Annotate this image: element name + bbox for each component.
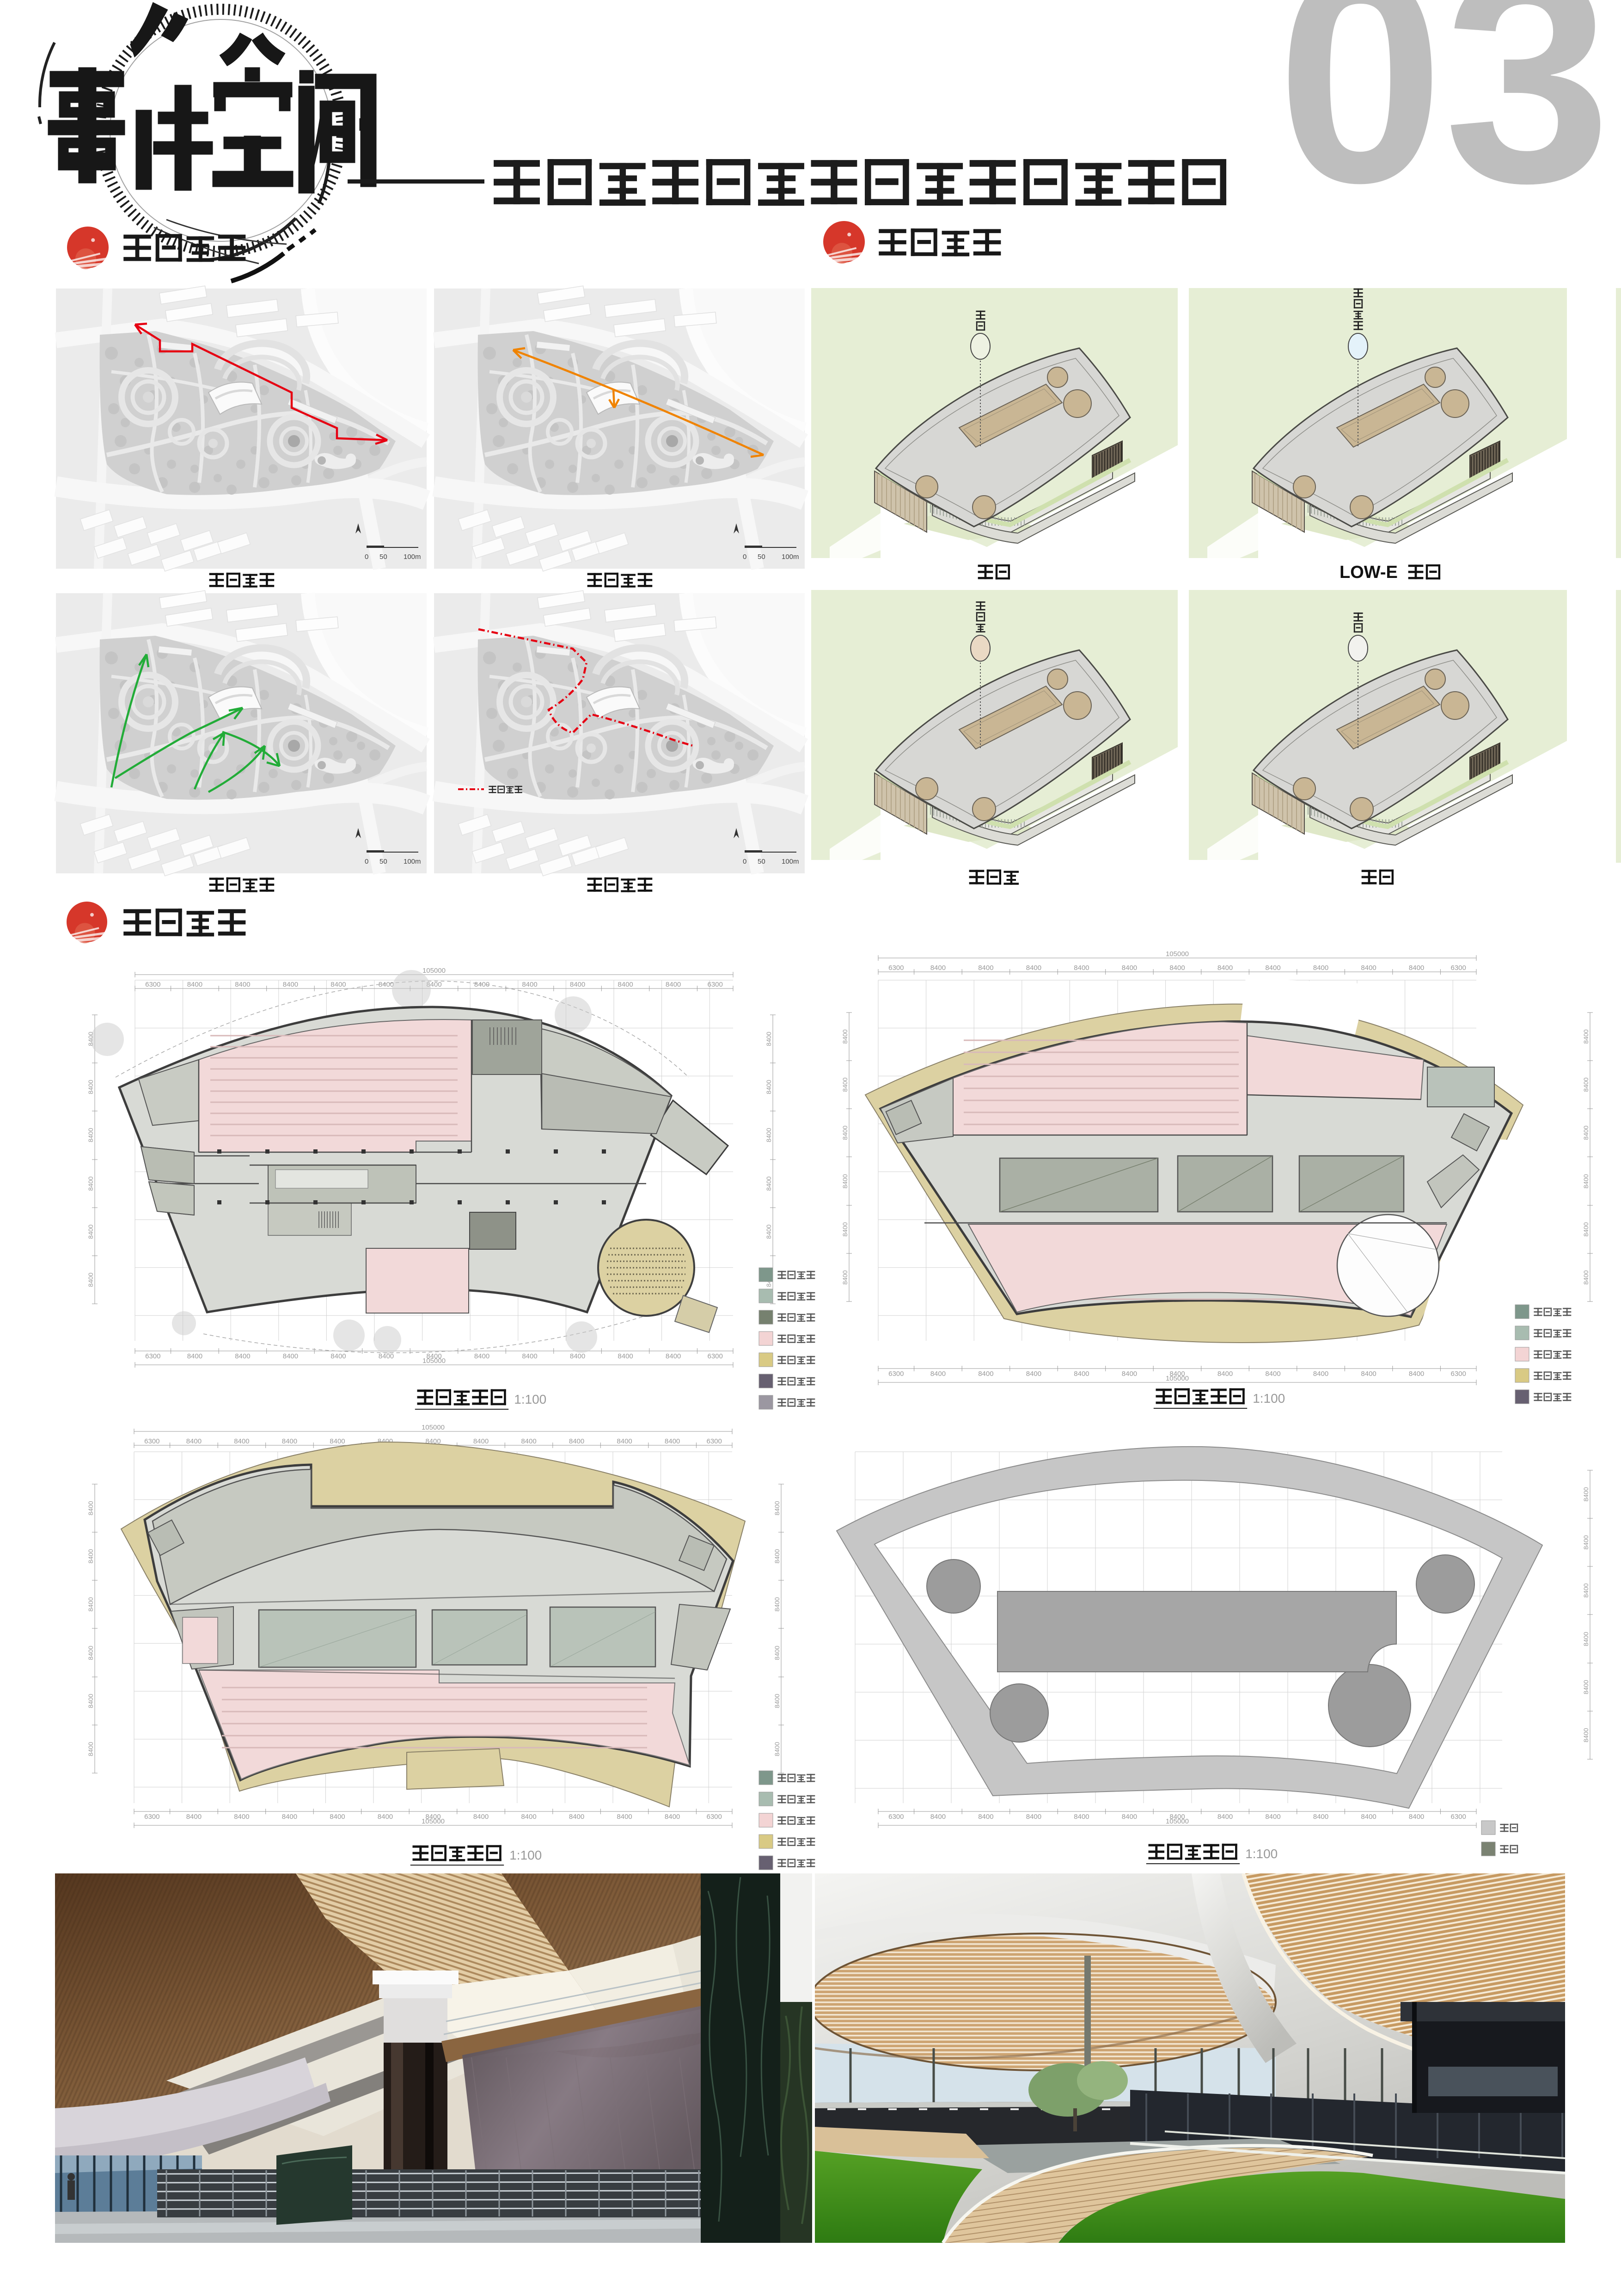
svg-text:8400: 8400 [1265,964,1280,972]
svg-text:6300: 6300 [1450,964,1466,972]
svg-text:1:100: 1:100 [1253,1391,1285,1406]
svg-text:1:100: 1:100 [514,1392,546,1406]
svg-text:8400: 8400 [570,981,585,988]
svg-text:8400: 8400 [1582,1222,1590,1236]
svg-text:8400: 8400 [665,1437,680,1445]
svg-text:8400: 8400 [1582,1728,1590,1742]
svg-text:8400: 8400 [330,981,346,988]
svg-text:8400: 8400 [978,1370,993,1378]
svg-text:8400: 8400 [1582,1535,1590,1549]
svg-text:6300: 6300 [706,1813,722,1821]
svg-text:8400: 8400 [87,1742,94,1756]
svg-text:8400: 8400 [665,1813,680,1821]
svg-text:8400: 8400 [186,1813,202,1821]
svg-text:LOW-E: LOW-E [1340,563,1398,582]
svg-text:8400: 8400 [186,1437,202,1445]
svg-text:03: 03 [1277,0,1611,245]
svg-text:8400: 8400 [1361,1813,1376,1821]
svg-text:8400: 8400 [87,1597,94,1611]
svg-text:8400: 8400 [474,1352,489,1360]
svg-text:8400: 8400 [521,1813,536,1821]
svg-text:8400: 8400 [187,981,202,988]
svg-text:8400: 8400 [235,1352,250,1360]
svg-text:8400: 8400 [87,1694,94,1708]
svg-text:8400: 8400 [1122,1370,1137,1378]
svg-text:8400: 8400 [378,1813,393,1821]
svg-text:8400: 8400 [666,1352,681,1360]
svg-text:8400: 8400 [1361,964,1376,972]
svg-text:8400: 8400 [1409,964,1424,972]
svg-text:8400: 8400 [1074,1813,1089,1821]
svg-text:8400: 8400 [618,981,633,988]
svg-text:6300: 6300 [145,981,160,988]
svg-text:8400: 8400 [1582,1270,1590,1284]
svg-text:8400: 8400 [1265,1370,1280,1378]
svg-text:8400: 8400 [841,1077,849,1092]
svg-text:8400: 8400 [569,1437,584,1445]
svg-text:8400: 8400 [765,1224,772,1239]
svg-text:8400: 8400 [1361,1370,1376,1378]
svg-text:8400: 8400 [569,1813,584,1821]
svg-text:8400: 8400 [1217,964,1233,972]
svg-text:8400: 8400 [1074,964,1089,972]
svg-text:8400: 8400 [1409,1813,1424,1821]
svg-text:8400: 8400 [773,1597,781,1611]
svg-text:8400: 8400 [1313,1370,1328,1378]
svg-text:8400: 8400 [1582,1125,1590,1140]
svg-text:8400: 8400 [1169,1370,1185,1378]
svg-text:8400: 8400 [473,1813,489,1821]
svg-text:8400: 8400 [425,1813,440,1821]
svg-text:8400: 8400 [473,1437,489,1445]
svg-text:8400: 8400 [283,981,298,988]
svg-text:8400: 8400 [87,1645,94,1660]
svg-text:8400: 8400 [379,981,394,988]
svg-text:8400: 8400 [1026,1370,1041,1378]
svg-text:105000: 105000 [422,1424,445,1431]
svg-text:8400: 8400 [521,1437,536,1445]
svg-text:8400: 8400 [282,1437,297,1445]
svg-text:8400: 8400 [283,1352,298,1360]
svg-text:8400: 8400 [773,1742,781,1756]
svg-text:8400: 8400 [1582,1487,1590,1501]
svg-text:8400: 8400 [1582,1077,1590,1092]
svg-text:8400: 8400 [1582,1680,1590,1694]
svg-text:8400: 8400 [234,1437,249,1445]
svg-text:6300: 6300 [1450,1813,1466,1821]
svg-text:8400: 8400 [1582,1029,1590,1044]
svg-text:6300: 6300 [145,1352,160,1360]
svg-text:8400: 8400 [87,1176,94,1191]
svg-text:6300: 6300 [707,981,722,988]
svg-text:8400: 8400 [773,1694,781,1708]
svg-text:6300: 6300 [144,1437,159,1445]
svg-text:8400: 8400 [1122,1813,1137,1821]
svg-text:105000: 105000 [1166,1817,1189,1825]
svg-text:8400: 8400 [841,1029,849,1044]
svg-text:105000: 105000 [1166,950,1189,958]
svg-text:6300: 6300 [706,1437,722,1445]
svg-text:6300: 6300 [707,1352,722,1360]
svg-text:8400: 8400 [522,1352,537,1360]
svg-text:8400: 8400 [1217,1813,1233,1821]
svg-text:8400: 8400 [87,1549,94,1563]
svg-text:8400: 8400 [765,1080,772,1094]
svg-text:8400: 8400 [1217,1370,1233,1378]
svg-text:8400: 8400 [841,1174,849,1188]
svg-text:8400: 8400 [330,1352,346,1360]
svg-text:8400: 8400 [841,1222,849,1236]
svg-text:8400: 8400 [1582,1632,1590,1646]
svg-text:8400: 8400 [617,1437,632,1445]
svg-text:8400: 8400 [1265,1813,1280,1821]
svg-text:8400: 8400 [765,1176,772,1191]
svg-text:1:100: 1:100 [1245,1847,1278,1861]
svg-text:8400: 8400 [187,1352,202,1360]
svg-text:8400: 8400 [570,1352,585,1360]
svg-text:8400: 8400 [1313,1813,1328,1821]
svg-text:8400: 8400 [841,1125,849,1140]
svg-text:8400: 8400 [87,1080,94,1094]
svg-text:6300: 6300 [144,1813,159,1821]
svg-text:8400: 8400 [330,1437,345,1445]
svg-text:8400: 8400 [522,981,537,988]
svg-text:8400: 8400 [235,981,250,988]
svg-text:8400: 8400 [1026,964,1041,972]
svg-text:8400: 8400 [765,1031,772,1046]
svg-text:8400: 8400 [765,1128,772,1142]
svg-text:8400: 8400 [330,1813,345,1821]
svg-text:6300: 6300 [1450,1370,1466,1378]
svg-text:8400: 8400 [773,1645,781,1660]
svg-text:8400: 8400 [87,1224,94,1239]
svg-text:8400: 8400 [87,1501,94,1515]
svg-text:8400: 8400 [930,1813,946,1821]
svg-text:8400: 8400 [1582,1174,1590,1188]
svg-text:8400: 8400 [773,1549,781,1563]
svg-text:6300: 6300 [888,964,904,972]
svg-text:8400: 8400 [773,1501,781,1515]
svg-text:8400: 8400 [234,1813,249,1821]
svg-text:8400: 8400 [1409,1370,1424,1378]
svg-text:8400: 8400 [978,1813,993,1821]
svg-text:8400: 8400 [1074,1370,1089,1378]
svg-text:8400: 8400 [1122,964,1137,972]
svg-text:8400: 8400 [930,1370,946,1378]
svg-text:8400: 8400 [666,981,681,988]
svg-text:8400: 8400 [841,1270,849,1284]
svg-text:8400: 8400 [1313,964,1328,972]
svg-text:6300: 6300 [888,1370,904,1378]
svg-text:8400: 8400 [930,964,946,972]
svg-text:8400: 8400 [618,1352,633,1360]
svg-text:105000: 105000 [422,967,446,975]
svg-text:8400: 8400 [978,964,993,972]
svg-text:6300: 6300 [888,1813,904,1821]
svg-text:8400: 8400 [617,1813,632,1821]
svg-text:8400: 8400 [87,1272,94,1287]
svg-text:8400: 8400 [1026,1813,1041,1821]
svg-text:8400: 8400 [282,1813,297,1821]
svg-text:1:100: 1:100 [509,1848,542,1862]
svg-text:8400: 8400 [1169,964,1185,972]
svg-text:8400: 8400 [1582,1583,1590,1597]
svg-text:8400: 8400 [426,1352,441,1360]
svg-text:8400: 8400 [87,1128,94,1142]
